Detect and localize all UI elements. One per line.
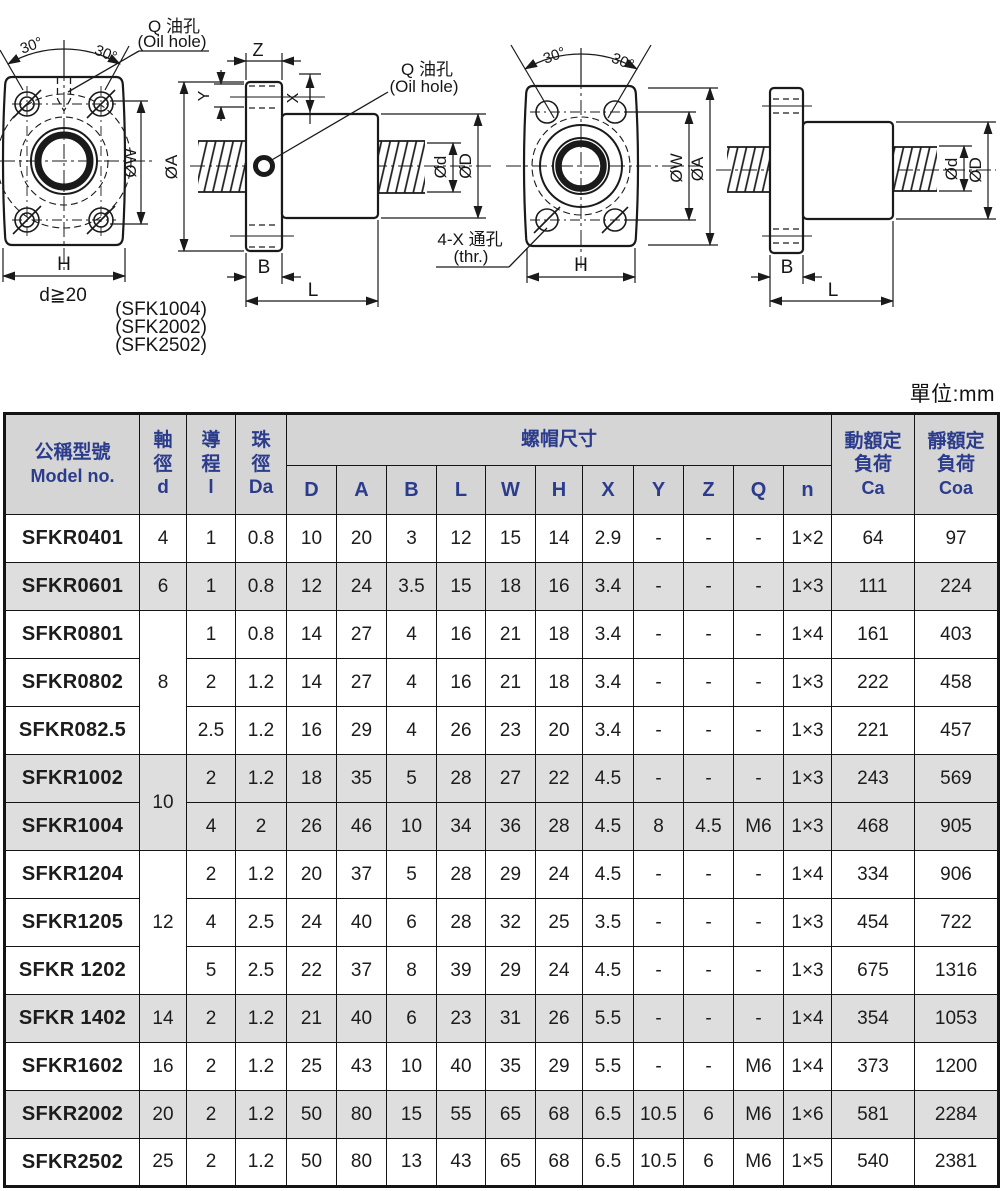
dynamic-load-cell: 373 <box>832 1043 915 1091</box>
header-dynamic-load: 動額定 負荷 Ca <box>832 414 915 515</box>
dim-cell-D: 14 <box>287 659 337 707</box>
dim-cell-n: 1×4 <box>784 851 832 899</box>
model-cell: SFKR1204 <box>5 851 140 899</box>
header-shaft-dia: 軸 徑 d <box>140 414 187 515</box>
dim-cell-A: 46 <box>337 803 387 851</box>
model-cell: SFKR2502 <box>5 1139 140 1187</box>
dim-cell-Q: - <box>734 995 784 1043</box>
static-load-cell: 2381 <box>915 1139 999 1187</box>
svg-text:(thr.): (thr.) <box>454 247 489 266</box>
header-col-B: B <box>387 466 437 515</box>
shaft-dia-cell: 8 <box>140 611 187 755</box>
dim-cell-X: 4.5 <box>583 755 634 803</box>
model-cell: SFKR0601 <box>5 563 140 611</box>
dim-ow-label: ØW <box>121 148 140 177</box>
ball-dia-cell: 2 <box>236 803 287 851</box>
static-load-cell: 457 <box>915 707 999 755</box>
static-load-cell: 906 <box>915 851 999 899</box>
right-side-view <box>716 88 996 307</box>
dim-cell-H: 14 <box>536 515 583 563</box>
table-row: SFKR0801810.8142741621183.4---1×4161403 <box>5 611 999 659</box>
header-model-zh: 公稱型號 <box>6 441 139 465</box>
header-col-H: H <box>536 466 583 515</box>
dim-cell-Q: M6 <box>734 1139 784 1187</box>
dim-cell-W: 29 <box>486 851 536 899</box>
dim-cell-X: 2.9 <box>583 515 634 563</box>
dim-cell-Q: M6 <box>734 1043 784 1091</box>
dim-cell-n: 1×3 <box>784 899 832 947</box>
dim-cell-D: 24 <box>287 899 337 947</box>
lead-cell: 2 <box>187 995 236 1043</box>
dynamic-load-cell: 581 <box>832 1091 915 1139</box>
dim-cell-H: 25 <box>536 899 583 947</box>
dim-cell-W: 31 <box>486 995 536 1043</box>
dim-cell-Y: - <box>634 611 684 659</box>
shaft-dia-cell: 12 <box>140 851 187 995</box>
dim-cell-X: 3.5 <box>583 899 634 947</box>
dim-cell-H: 24 <box>536 947 583 995</box>
dim-cell-X: 4.5 <box>583 803 634 851</box>
table-row: SFKR0601610.812243.51518163.4---1×311122… <box>5 563 999 611</box>
lead-cell: 2 <box>187 1139 236 1187</box>
dim-cell-D: 16 <box>287 707 337 755</box>
dim-cell-D: 20 <box>287 851 337 899</box>
dim-cell-L: 12 <box>437 515 486 563</box>
dim-cell-X: 3.4 <box>583 659 634 707</box>
svg-text:(Oil hole): (Oil hole) <box>390 77 459 96</box>
dim-cell-W: 27 <box>486 755 536 803</box>
dim-cell-Y: - <box>634 947 684 995</box>
dynamic-load-cell: 221 <box>832 707 915 755</box>
model-cell: SFKR1002 <box>5 755 140 803</box>
variant-3: (SFK2502) <box>115 335 207 356</box>
dynamic-load-cell: 540 <box>832 1139 915 1187</box>
dim-l-label: L <box>828 280 839 301</box>
dim-cell-B: 8 <box>387 947 437 995</box>
shaft-dia-cell: 25 <box>140 1139 187 1187</box>
dim-cell-Y: - <box>634 515 684 563</box>
dim-cell-Y: - <box>634 563 684 611</box>
model-cell: SFKR1205 <box>5 899 140 947</box>
dim-cell-W: 18 <box>486 563 536 611</box>
dim-oa-label: ØA <box>688 156 707 181</box>
dim-cell-n: 1×3 <box>784 659 832 707</box>
ball-dia-cell: 2.5 <box>236 899 287 947</box>
dim-cell-A: 80 <box>337 1139 387 1187</box>
dim-cell-D: 12 <box>287 563 337 611</box>
dim-cell-H: 29 <box>536 1043 583 1091</box>
dim-oa-label: ØA <box>162 154 181 179</box>
dim-cell-n: 1×4 <box>784 611 832 659</box>
ball-dia-cell: 1.2 <box>236 1043 287 1091</box>
dim-cell-B: 4 <box>387 707 437 755</box>
table-row: SFKR0401410.8102031215142.9---1×26497 <box>5 515 999 563</box>
dim-l-label: L <box>308 280 319 301</box>
dim-cell-Q: - <box>734 659 784 707</box>
dim-cell-L: 15 <box>437 563 486 611</box>
dim-cell-n: 1×3 <box>784 563 832 611</box>
dim-cell-Y: - <box>634 899 684 947</box>
catalog-page: { "units_label": "單位:mm", "drawings": { … <box>0 0 1000 1191</box>
static-load-cell: 224 <box>915 563 999 611</box>
header-col-Z: Z <box>684 466 734 515</box>
dim-cell-X: 6.5 <box>583 1091 634 1139</box>
dim-cell-A: 20 <box>337 515 387 563</box>
dim-cell-n: 1×6 <box>784 1091 832 1139</box>
dim-cell-B: 4 <box>387 611 437 659</box>
ball-dia-cell: 1.2 <box>236 1091 287 1139</box>
model-cell: SFKR0401 <box>5 515 140 563</box>
static-load-cell: 97 <box>915 515 999 563</box>
dim-cell-Z: - <box>684 1043 734 1091</box>
nut-body <box>282 114 378 218</box>
dim-cell-Z: 6 <box>684 1139 734 1187</box>
model-cell: SFKR0801 <box>5 611 140 659</box>
dim-cell-L: 26 <box>437 707 486 755</box>
dim-cell-Q: - <box>734 851 784 899</box>
dim-cell-H: 20 <box>536 707 583 755</box>
dim-cell-H: 68 <box>536 1091 583 1139</box>
dim-cell-L: 28 <box>437 851 486 899</box>
dim-cell-B: 3.5 <box>387 563 437 611</box>
dim-cell-L: 28 <box>437 755 486 803</box>
ball-dia-cell: 1.2 <box>236 995 287 1043</box>
shaft-note: d≧20 <box>39 285 87 306</box>
dim-cell-B: 6 <box>387 995 437 1043</box>
dim-cell-L: 28 <box>437 899 486 947</box>
dim-cell-B: 3 <box>387 515 437 563</box>
dim-cell-Y: 10.5 <box>634 1139 684 1187</box>
dim-cell-B: 4 <box>387 659 437 707</box>
dim-cell-A: 27 <box>337 659 387 707</box>
table-header: 公稱型號 Model no. 軸 徑 d 導 程 l <box>5 414 999 515</box>
dim-cell-W: 15 <box>486 515 536 563</box>
static-load-cell: 458 <box>915 659 999 707</box>
dim-cell-Z: - <box>684 851 734 899</box>
dynamic-load-cell: 64 <box>832 515 915 563</box>
lead-cell: 2 <box>187 1043 236 1091</box>
lead-cell: 2 <box>187 1091 236 1139</box>
dim-cell-D: 21 <box>287 995 337 1043</box>
dim-cell-Z: 6 <box>684 1091 734 1139</box>
shaft-dia-cell: 10 <box>140 755 187 851</box>
header-col-X: X <box>583 466 634 515</box>
ball-dia-cell: 1.2 <box>236 1139 287 1187</box>
dim-cell-Y: - <box>634 1043 684 1091</box>
dynamic-load-cell: 354 <box>832 995 915 1043</box>
dim-cell-Z: - <box>684 659 734 707</box>
dim-cell-Z: - <box>684 995 734 1043</box>
dim-cell-n: 1×3 <box>784 755 832 803</box>
dim-cell-B: 10 <box>387 1043 437 1091</box>
header-col-Q: Q <box>734 466 784 515</box>
dim-cell-H: 24 <box>536 851 583 899</box>
dim-cell-Q: - <box>734 899 784 947</box>
dim-cell-Z: - <box>684 755 734 803</box>
dim-ow-label: ØW <box>667 153 686 182</box>
dim-cell-B: 10 <box>387 803 437 851</box>
dim-cell-n: 1×4 <box>784 995 832 1043</box>
header-ball-dia: 珠 徑 Da <box>236 414 287 515</box>
dim-cell-Y: - <box>634 659 684 707</box>
table-row: SFKR25022521.25080134365686.510.56M61×55… <box>5 1139 999 1187</box>
dim-cell-H: 28 <box>536 803 583 851</box>
header-col-W: W <box>486 466 536 515</box>
dim-cell-D: 50 <box>287 1139 337 1187</box>
dim-cell-Z: - <box>684 515 734 563</box>
shaft-dia-cell: 14 <box>140 995 187 1043</box>
dim-cell-Q: - <box>734 947 784 995</box>
static-load-cell: 1053 <box>915 995 999 1043</box>
ball-dia-cell: 1.2 <box>236 755 287 803</box>
lead-cell: 2 <box>187 755 236 803</box>
dim-cell-L: 43 <box>437 1139 486 1187</box>
dim-cell-A: 29 <box>337 707 387 755</box>
dim-od-label: Ød <box>942 158 961 181</box>
dim-cell-A: 43 <box>337 1043 387 1091</box>
table-row: SFKR10021021.2183552827224.5---1×3243569 <box>5 755 999 803</box>
dynamic-load-cell: 675 <box>832 947 915 995</box>
dim-cell-Y: - <box>634 707 684 755</box>
dim-cell-W: 36 <box>486 803 536 851</box>
dim-cell-D: 50 <box>287 1091 337 1139</box>
header-col-n: n <box>784 466 832 515</box>
dim-obig-label: ØD <box>966 157 985 183</box>
dim-cell-B: 5 <box>387 755 437 803</box>
lead-cell: 1 <box>187 563 236 611</box>
dim-cell-D: 18 <box>287 755 337 803</box>
dim-od-label: Ød <box>431 156 450 179</box>
lead-cell: 4 <box>187 899 236 947</box>
header-static-load: 靜額定 負荷 Coa <box>915 414 999 515</box>
svg-text:(Oil hole): (Oil hole) <box>138 32 207 51</box>
dim-cell-H: 18 <box>536 659 583 707</box>
dim-cell-Y: - <box>634 851 684 899</box>
ball-dia-cell: 0.8 <box>236 563 287 611</box>
dim-cell-Q: M6 <box>734 1091 784 1139</box>
dim-cell-X: 6.5 <box>583 1139 634 1187</box>
dynamic-load-cell: 111 <box>832 563 915 611</box>
dim-cell-A: 40 <box>337 899 387 947</box>
dim-cell-W: 65 <box>486 1091 536 1139</box>
dim-z <box>227 53 301 80</box>
dim-cell-Q: M6 <box>734 803 784 851</box>
dim-cell-L: 16 <box>437 659 486 707</box>
ball-dia-cell: 1.2 <box>236 659 287 707</box>
dim-cell-Q: - <box>734 515 784 563</box>
dim-cell-Z: - <box>684 947 734 995</box>
dim-cell-L: 16 <box>437 611 486 659</box>
header-nut-dims-group: 螺帽尺寸 <box>287 414 832 466</box>
dynamic-load-cell: 454 <box>832 899 915 947</box>
dim-cell-X: 3.4 <box>583 611 634 659</box>
header-col-A: A <box>337 466 387 515</box>
dim-cell-Z: - <box>684 899 734 947</box>
dim-cell-B: 15 <box>387 1091 437 1139</box>
dim-cell-A: 37 <box>337 851 387 899</box>
dim-cell-Z: 4.5 <box>684 803 734 851</box>
lead-cell: 5 <box>187 947 236 995</box>
ball-dia-cell: 0.8 <box>236 515 287 563</box>
dim-cell-Z: - <box>684 563 734 611</box>
model-cell: SFKR082.5 <box>5 707 140 755</box>
model-cell: SFKR 1402 <box>5 995 140 1043</box>
dim-cell-X: 4.5 <box>583 851 634 899</box>
static-load-cell: 722 <box>915 899 999 947</box>
dynamic-load-cell: 161 <box>832 611 915 659</box>
lead-cell: 2 <box>187 851 236 899</box>
table-row: SFKR20022021.25080155565686.510.56M61×65… <box>5 1091 999 1139</box>
dynamic-load-cell: 334 <box>832 851 915 899</box>
dim-cell-X: 5.5 <box>583 995 634 1043</box>
dim-cell-A: 27 <box>337 611 387 659</box>
spec-table: 公稱型號 Model no. 軸 徑 d 導 程 l <box>3 412 1000 1188</box>
header-col-D: D <box>287 466 337 515</box>
dim-cell-Z: - <box>684 611 734 659</box>
dim-z-label: Z <box>253 40 264 60</box>
dim-cell-n: 1×5 <box>784 1139 832 1187</box>
model-cell: SFKR0802 <box>5 659 140 707</box>
model-cell: SFKR 1202 <box>5 947 140 995</box>
dim-cell-A: 80 <box>337 1091 387 1139</box>
lead-cell: 1 <box>187 611 236 659</box>
dim-cell-D: 10 <box>287 515 337 563</box>
ball-dia-cell: 0.8 <box>236 611 287 659</box>
header-col-Y: Y <box>634 466 684 515</box>
dim-y-label: Y <box>196 90 213 101</box>
shaft-dia-cell: 20 <box>140 1091 187 1139</box>
shaft-dia-cell: 4 <box>140 515 187 563</box>
dim-cell-Q: - <box>734 611 784 659</box>
dim-cell-D: 22 <box>287 947 337 995</box>
dim-cell-A: 24 <box>337 563 387 611</box>
table-row: SFKR 14021421.2214062331265.5---1×435410… <box>5 995 999 1043</box>
dim-cell-B: 6 <box>387 899 437 947</box>
header-model-en: Model no. <box>6 465 139 488</box>
ball-dia-cell: 2.5 <box>236 947 287 995</box>
dim-cell-Y: - <box>634 755 684 803</box>
dim-cell-W: 35 <box>486 1043 536 1091</box>
ball-dia-cell: 1.2 <box>236 707 287 755</box>
dim-cell-W: 32 <box>486 899 536 947</box>
right-front-view <box>506 45 718 283</box>
dim-cell-L: 23 <box>437 995 486 1043</box>
technical-drawings: Q 油孔 (Oil hole) 30° 30° ØW ØA H d≧20 Z Y… <box>0 0 1000 378</box>
header-lead: 導 程 l <box>187 414 236 515</box>
angle-right-label: 30° <box>609 50 636 74</box>
dim-cell-W: 23 <box>486 707 536 755</box>
dim-cell-W: 29 <box>486 947 536 995</box>
dim-cell-Y: - <box>634 995 684 1043</box>
model-cell: SFKR1602 <box>5 1043 140 1091</box>
dim-cell-D: 25 <box>287 1043 337 1091</box>
dim-cell-Q: - <box>734 755 784 803</box>
dim-b-label: B <box>781 257 794 278</box>
lead-cell: 1 <box>187 515 236 563</box>
dim-h-label: H <box>57 254 71 275</box>
model-cell: SFKR2002 <box>5 1091 140 1139</box>
dim-cell-X: 5.5 <box>583 1043 634 1091</box>
static-load-cell: 1316 <box>915 947 999 995</box>
dim-cell-W: 21 <box>486 659 536 707</box>
dim-cell-L: 39 <box>437 947 486 995</box>
dim-b-label: B <box>258 257 271 278</box>
dim-cell-A: 35 <box>337 755 387 803</box>
dim-cell-n: 1×2 <box>784 515 832 563</box>
angle-left-label: 30° <box>18 34 45 58</box>
table-body: SFKR0401410.8102031215142.9---1×26497SFK… <box>5 515 999 1187</box>
dim-cell-n: 1×3 <box>784 707 832 755</box>
dynamic-load-cell: 243 <box>832 755 915 803</box>
dim-cell-A: 40 <box>337 995 387 1043</box>
static-load-cell: 1200 <box>915 1043 999 1091</box>
dim-cell-Y: 10.5 <box>634 1091 684 1139</box>
drawing-canvas: Q 油孔 (Oil hole) 30° 30° ØW ØA H d≧20 Z Y… <box>0 0 1000 378</box>
dim-cell-X: 4.5 <box>583 947 634 995</box>
dim-cell-Q: - <box>734 707 784 755</box>
units-label: 單位:mm <box>910 378 995 408</box>
angle-left-label: 30° <box>541 44 568 68</box>
lead-cell: 4 <box>187 803 236 851</box>
table-row: SFKR16021621.22543104035295.5--M61×43731… <box>5 1043 999 1091</box>
header-col-L: L <box>437 466 486 515</box>
static-load-cell: 403 <box>915 611 999 659</box>
dynamic-load-cell: 222 <box>832 659 915 707</box>
dim-cell-L: 34 <box>437 803 486 851</box>
dim-cell-L: 55 <box>437 1091 486 1139</box>
static-load-cell: 569 <box>915 755 999 803</box>
dim-cell-A: 37 <box>337 947 387 995</box>
dim-cell-H: 16 <box>536 563 583 611</box>
dim-obig-label: ØD <box>456 153 475 179</box>
nut-body <box>803 122 893 219</box>
dim-cell-W: 21 <box>486 611 536 659</box>
dim-cell-X: 3.4 <box>583 563 634 611</box>
dim-cell-H: 22 <box>536 755 583 803</box>
lead-cell: 2 <box>187 659 236 707</box>
dim-y <box>214 70 244 121</box>
oil-hole <box>256 158 273 175</box>
dim-cell-X: 3.4 <box>583 707 634 755</box>
dim-cell-W: 65 <box>486 1139 536 1187</box>
dim-cell-Z: - <box>684 707 734 755</box>
dim-cell-H: 68 <box>536 1139 583 1187</box>
header-model: 公稱型號 Model no. <box>5 414 140 515</box>
static-load-cell: 905 <box>915 803 999 851</box>
dim-cell-B: 5 <box>387 851 437 899</box>
dim-cell-L: 40 <box>437 1043 486 1091</box>
thru-hole-label: 4-X 通孔 (thr.) <box>436 228 547 267</box>
dynamic-load-cell: 468 <box>832 803 915 851</box>
shaft-dia-cell: 6 <box>140 563 187 611</box>
static-load-cell: 2284 <box>915 1091 999 1139</box>
dim-cell-n: 1×4 <box>784 1043 832 1091</box>
table-row: SFKR12041221.2203752829244.5---1×4334906 <box>5 851 999 899</box>
dim-cell-D: 26 <box>287 803 337 851</box>
ball-dia-cell: 1.2 <box>236 851 287 899</box>
dim-cell-D: 14 <box>287 611 337 659</box>
dim-h-label: H <box>574 255 588 276</box>
angle-right-label: 30° <box>92 42 119 66</box>
dim-cell-B: 13 <box>387 1139 437 1187</box>
shaft-dia-cell: 16 <box>140 1043 187 1091</box>
dim-cell-n: 1×3 <box>784 947 832 995</box>
dim-cell-H: 18 <box>536 611 583 659</box>
dim-cell-H: 26 <box>536 995 583 1043</box>
dim-cell-Q: - <box>734 563 784 611</box>
model-cell: SFKR1004 <box>5 803 140 851</box>
lead-cell: 2.5 <box>187 707 236 755</box>
